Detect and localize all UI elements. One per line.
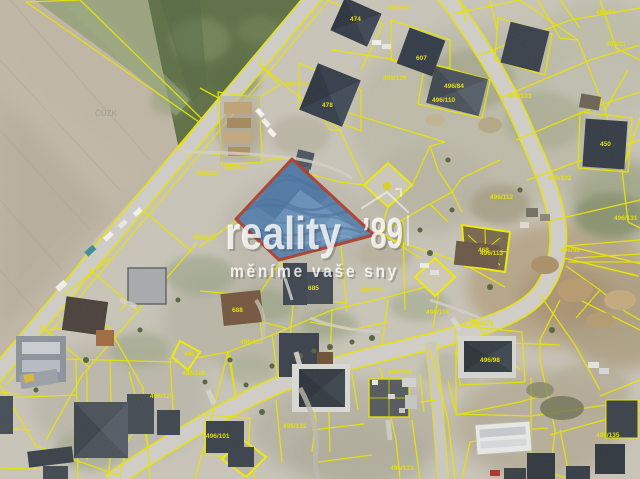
- svg-text:’89: ’89: [362, 209, 403, 258]
- svg-text:ČÚZK: ČÚZK: [95, 109, 117, 118]
- svg-text:reality: reality: [225, 207, 341, 259]
- svg-text:měníme vaše sny: měníme vaše sny: [230, 261, 399, 281]
